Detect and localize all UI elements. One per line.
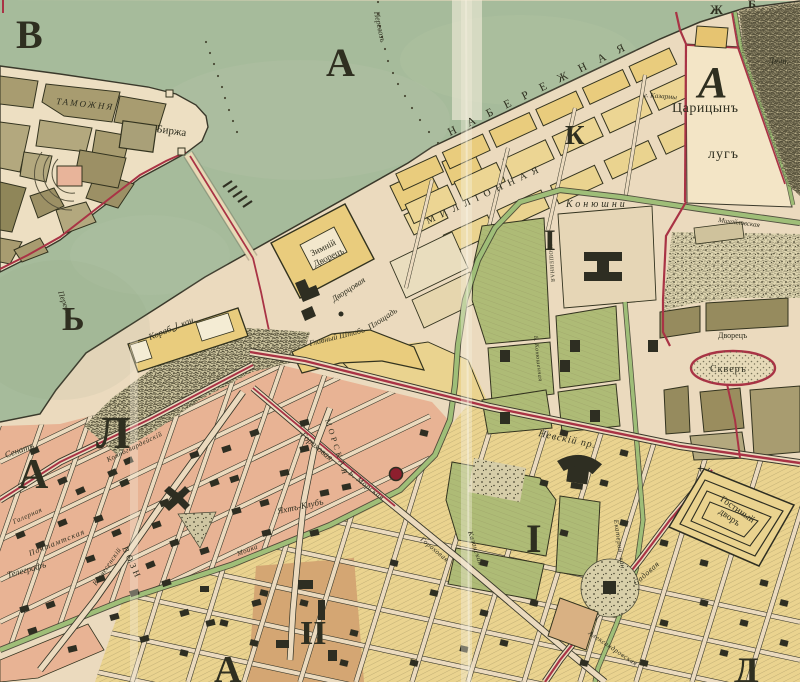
svg-text:Дворецъ: Дворецъ (718, 331, 747, 340)
svg-text:II: II (300, 615, 326, 652)
svg-text:В: В (16, 12, 43, 57)
svg-text:I: I (526, 516, 542, 561)
svg-text:А: А (18, 452, 49, 498)
svg-text:Лѣт.: Лѣт. (767, 56, 789, 66)
svg-text:Царицынъ: Царицынъ (672, 101, 738, 116)
svg-text:+: + (697, 461, 704, 476)
svg-text:К: К (565, 120, 585, 150)
svg-text:I: I (544, 224, 556, 257)
svg-text:лугъ: лугъ (708, 147, 739, 162)
svg-text:А: А (326, 40, 355, 85)
svg-text:А: А (695, 58, 727, 107)
svg-text:А: А (214, 649, 242, 682)
svg-text:Конюшни: Конюшни (565, 199, 628, 210)
svg-text:Скверъ: Скверъ (710, 364, 747, 375)
svg-text:Д: Д (734, 650, 759, 682)
svg-text:Ж: Ж (710, 2, 723, 17)
